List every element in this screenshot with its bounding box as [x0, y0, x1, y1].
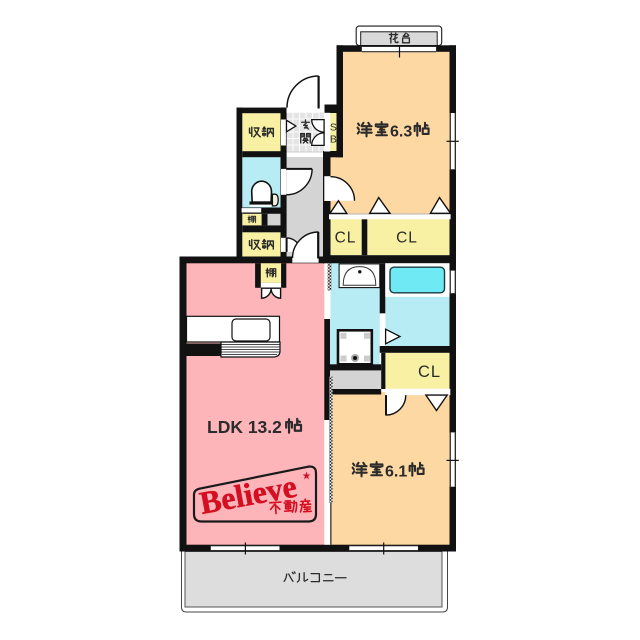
svg-text:LDK 13.2: LDK 13.2	[207, 417, 282, 437]
svg-text:CL: CL	[396, 230, 418, 247]
svg-text:CL: CL	[418, 363, 441, 381]
svg-text:S: S	[330, 122, 337, 134]
svg-text:B: B	[330, 134, 337, 146]
svg-text:6.3: 6.3	[390, 124, 412, 141]
svg-text:6.1: 6.1	[385, 464, 407, 481]
svg-text:CL: CL	[335, 230, 357, 247]
